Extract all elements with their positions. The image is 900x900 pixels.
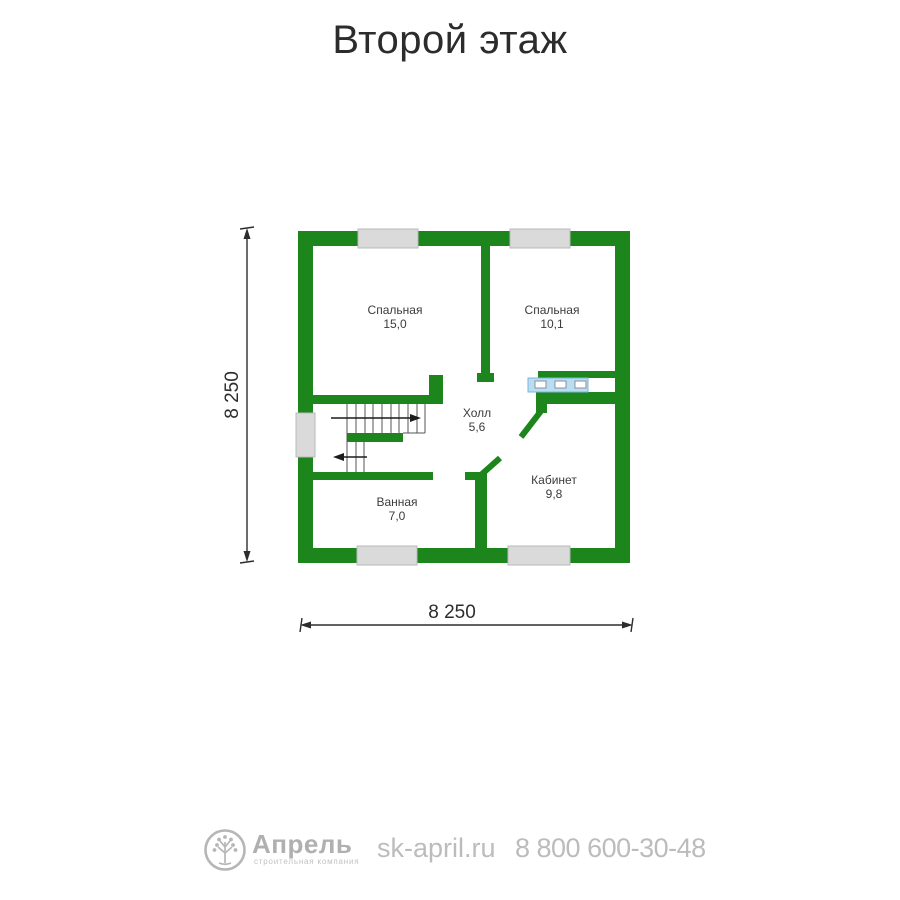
wardrobe-door-3 [575, 381, 586, 388]
room-name: Ванная [376, 495, 417, 509]
company-logo-tree-icon [203, 828, 247, 872]
dimension-tick [240, 227, 254, 229]
wall-bedrooms-divider-cap [477, 373, 494, 382]
room-name: Спальная [525, 303, 580, 317]
room-label-office: Кабинет 9,8 [531, 473, 577, 501]
window-top-right [510, 229, 570, 248]
interior-walls [313, 246, 630, 548]
company-website: sk-april.ru [377, 833, 496, 864]
dimension-label-width: 8 250 [428, 602, 476, 624]
window-bottom-left [357, 546, 417, 565]
dimension-tick [240, 561, 254, 563]
wall-bath-top [313, 472, 433, 480]
company-name: Апрель [252, 829, 352, 860]
wall-bath-office-divider [475, 472, 487, 548]
wall-bedroom2-bottom [538, 371, 630, 378]
wall-left [298, 231, 313, 563]
room-name: Кабинет [531, 473, 577, 487]
room-name: Холл [463, 406, 491, 420]
room-label-bedroom-1: Спальная 15,0 [368, 303, 423, 331]
window-bottom-right [508, 546, 570, 565]
logo-tree-branches [218, 841, 232, 864]
stairs-down-arrow-head [333, 453, 344, 461]
stairs-up-arrow-head [410, 414, 421, 422]
room-area: 9,8 [531, 487, 577, 501]
page: Второй этаж [0, 0, 900, 900]
dimension-label-height: 8 250 [222, 371, 244, 419]
wall-stairs-center [347, 433, 403, 442]
floor-plan-drawing [0, 0, 900, 900]
wall-bedroom1-bottom [313, 395, 443, 404]
room-name: Спальная [368, 303, 423, 317]
dimension-tick [300, 618, 302, 632]
wardrobe-symbol [528, 378, 588, 392]
dimension-arrow-down [244, 551, 251, 562]
room-area: 5,6 [463, 420, 491, 434]
room-label-hall: Холл 5,6 [463, 406, 491, 434]
window-top-left [358, 229, 418, 248]
dimension-tick [631, 618, 633, 632]
room-area: 10,1 [525, 317, 580, 331]
room-area: 15,0 [368, 317, 423, 331]
company-tagline: строительная компания [254, 857, 359, 866]
dimension-arrow-up [244, 228, 251, 239]
room-label-bedroom-2: Спальная 10,1 [525, 303, 580, 331]
window-left [296, 413, 315, 457]
room-label-bathroom: Ванная 7,0 [376, 495, 417, 523]
wall-bottom [298, 548, 630, 563]
wardrobe-door-1 [535, 381, 546, 388]
wall-top [298, 231, 630, 246]
door-leaf-office-bottom [482, 458, 500, 474]
company-phone: 8 800 600-30-48 [515, 833, 706, 864]
wall-bedroom1-door-stub [429, 375, 443, 404]
wall-office-top [536, 392, 630, 404]
door-leaf-office-top [521, 411, 541, 437]
wardrobe-door-2 [555, 381, 566, 388]
room-area: 7,0 [376, 509, 417, 523]
wall-bedrooms-divider [481, 246, 490, 373]
